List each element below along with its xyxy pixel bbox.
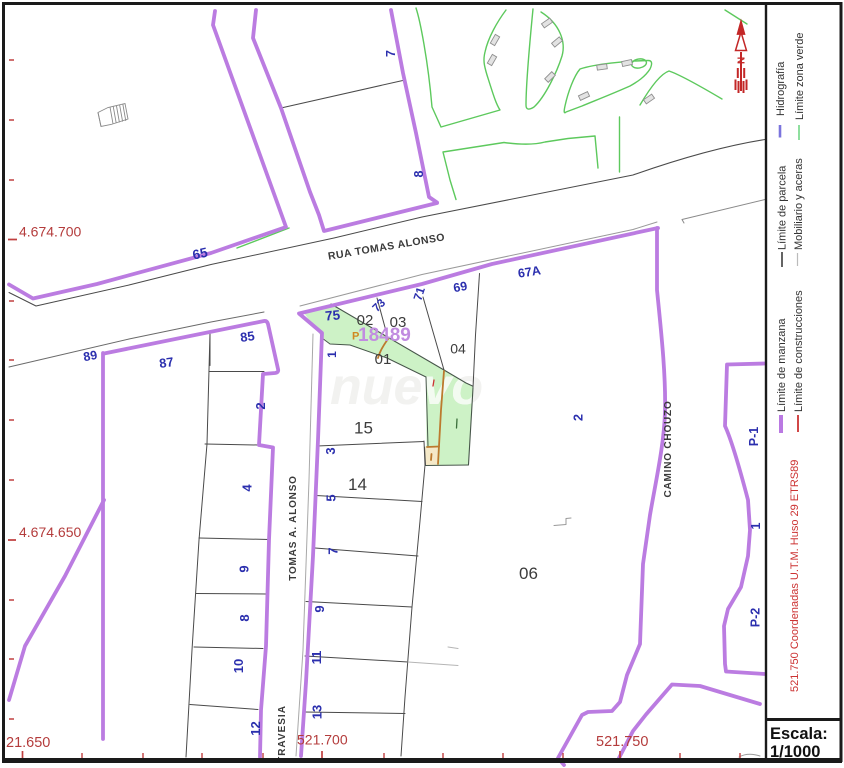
svg-text:75: 75 <box>324 307 341 323</box>
svg-text:13: 13 <box>310 705 325 719</box>
svg-text:CAMINO CHOUZO: CAMINO CHOUZO <box>663 400 674 497</box>
svg-text:1: 1 <box>325 351 339 358</box>
svg-text:3: 3 <box>323 447 338 454</box>
svg-text:TRAVESIA: TRAVESIA <box>277 705 288 763</box>
svg-text:10: 10 <box>231 659 246 673</box>
svg-text:04: 04 <box>450 341 466 357</box>
svg-text:8: 8 <box>412 170 426 177</box>
svg-text:Hidrografía: Hidrografía <box>775 61 787 116</box>
svg-text:7: 7 <box>326 547 341 554</box>
svg-text:85: 85 <box>239 328 255 345</box>
svg-text:21.650: 21.650 <box>6 735 50 751</box>
svg-text:69: 69 <box>452 279 468 295</box>
svg-text:Mobiliario y aceras: Mobiliario y aceras <box>793 158 805 250</box>
svg-text:TOMAS A. ALONSO: TOMAS A. ALONSO <box>288 475 299 581</box>
svg-text:87: 87 <box>158 354 174 371</box>
svg-text:521.700: 521.700 <box>297 732 348 748</box>
svg-text:12: 12 <box>248 721 263 735</box>
svg-text:18489: 18489 <box>358 325 411 346</box>
svg-text:11: 11 <box>309 651 324 665</box>
svg-text:9: 9 <box>312 605 327 612</box>
svg-text:4.674.650: 4.674.650 <box>19 524 81 540</box>
svg-text:Escala:: Escala: <box>770 725 828 743</box>
svg-text:14: 14 <box>348 475 367 494</box>
svg-text:P-1: P-1 <box>747 427 761 447</box>
svg-text:1: 1 <box>749 522 763 529</box>
svg-text:Límite de construcciones: Límite de construcciones <box>793 290 805 412</box>
svg-text:Límite zona verde: Límite zona verde <box>794 33 806 120</box>
svg-text:01: 01 <box>375 351 392 368</box>
svg-text:06: 06 <box>519 564 538 583</box>
svg-text:8: 8 <box>237 614 252 621</box>
svg-text:4.674.700: 4.674.700 <box>19 224 81 240</box>
svg-text:89: 89 <box>82 348 98 364</box>
svg-text:521.750: 521.750 <box>596 734 648 750</box>
svg-text:4: 4 <box>240 484 255 492</box>
svg-text:521.750 Coordenadas U.T.M. Hus: 521.750 Coordenadas U.T.M. Huso 29 ETRS8… <box>789 460 801 692</box>
svg-text:9: 9 <box>237 565 252 572</box>
svg-text:P-2: P-2 <box>749 608 763 628</box>
svg-text:Límite de manzana: Límite de manzana <box>776 318 788 412</box>
svg-text:Límite de parcela: Límite de parcela <box>777 165 789 250</box>
svg-text:2: 2 <box>253 402 268 409</box>
svg-text:7: 7 <box>384 50 398 57</box>
svg-text:15: 15 <box>354 419 373 438</box>
svg-text:2: 2 <box>572 414 586 421</box>
svg-text:5: 5 <box>324 494 339 501</box>
